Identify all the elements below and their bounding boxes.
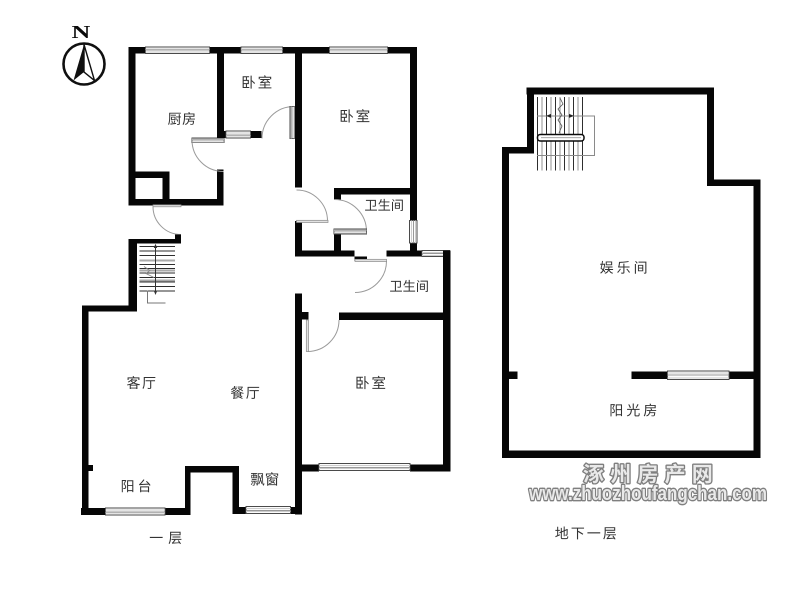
svg-text:www.zhuozhoufangchan.com: www.zhuozhoufangchan.com xyxy=(528,482,767,505)
